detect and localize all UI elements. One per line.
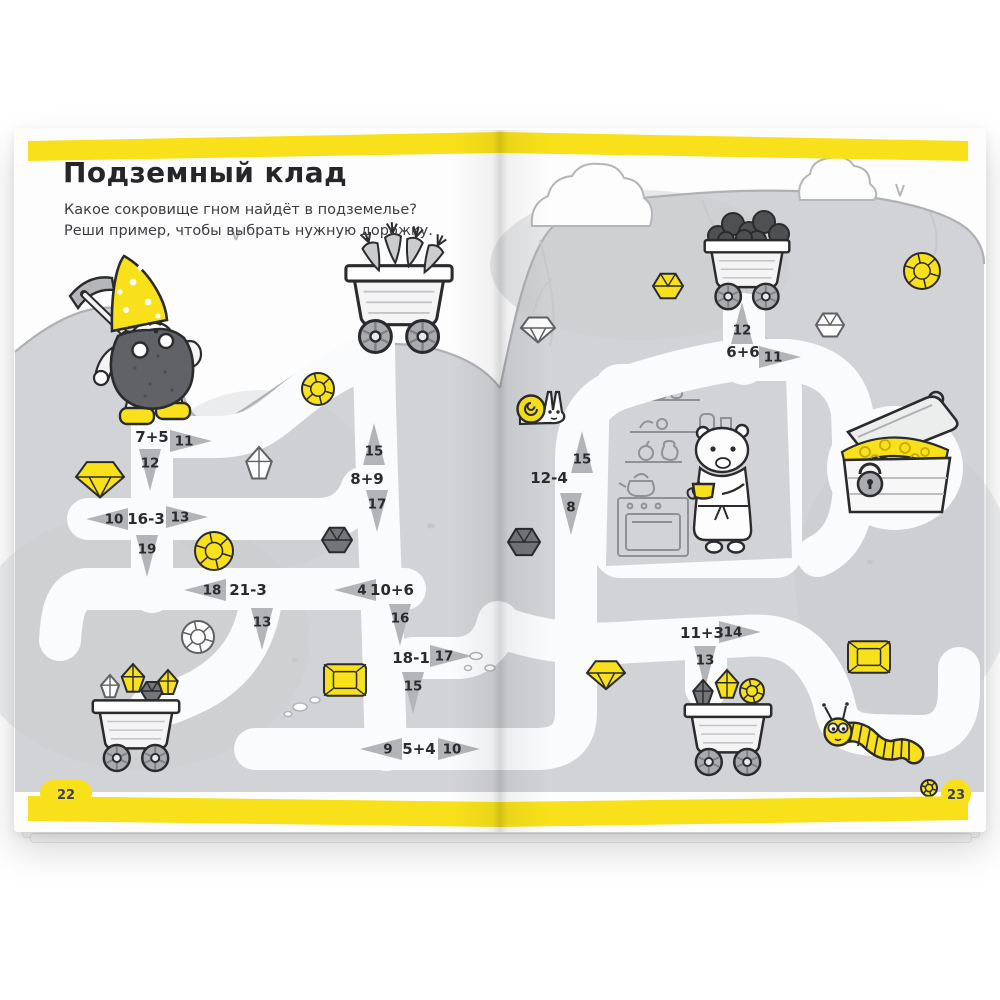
arrow-answer-label: 17 [368, 497, 387, 513]
arrow-answer-label: 12 [733, 323, 752, 339]
arrow-answer-label: 13 [253, 615, 272, 631]
math-expression: 5+4 [402, 740, 435, 758]
gem-white-round-icon [182, 621, 214, 653]
gem-yellow-round-icon [195, 532, 233, 570]
boot-icon [120, 408, 154, 424]
arrow-answer-label: 9 [383, 742, 392, 758]
page-title: Подземный клад [63, 156, 347, 189]
arrow-answer-label: 11 [175, 434, 194, 450]
arrow-answer-label: 8 [566, 500, 575, 516]
arrow-answer-label: 10 [105, 512, 124, 528]
beard [111, 329, 193, 409]
gem-yellow-emerald-icon [848, 641, 890, 673]
arrow-answer-label: 13 [171, 510, 190, 526]
gem-yellow-hex-icon [653, 274, 683, 299]
arrow-answer-label: 11 [764, 350, 783, 366]
math-expression: 18-1 [392, 649, 430, 667]
maze-artwork: 11127+510131916-3181321-315178+941610+61… [0, 0, 1000, 1000]
page-subtitle: Какое сокровище гном найдёт в подземелье… [64, 200, 433, 242]
math-expression: 11+3 [680, 624, 724, 642]
math-expression: 7+5 [135, 428, 168, 446]
gem-white-hex-icon [816, 314, 844, 337]
arrow-answer-label: 17 [435, 649, 454, 665]
math-expression: 10+6 [370, 581, 414, 599]
math-expression: 6+6 [726, 343, 759, 361]
gem-yellow-round-icon [740, 679, 764, 703]
tea-cup-icon [693, 484, 714, 499]
book-spread: 11127+510131916-3181321-315178+941610+61… [0, 0, 1000, 1000]
arrow-answer-label: 4 [357, 583, 366, 599]
subtitle-line-1: Какое сокровище гном найдёт в подземелье… [64, 200, 433, 221]
math-expression: 16-3 [127, 510, 165, 528]
arrow-answer-label: 12 [141, 456, 160, 472]
page-number-left: 22 [57, 788, 75, 803]
math-expression: 21-3 [229, 581, 267, 599]
hamster [688, 425, 752, 553]
arrow-answer-label: 19 [138, 542, 157, 558]
arrow-answer-label: 14 [724, 625, 743, 641]
arrow-answer-label: 15 [404, 679, 423, 695]
page-number-right: 23 [947, 788, 965, 803]
arrow-answer-label: 18 [203, 583, 222, 599]
spine-shadow [452, 130, 548, 832]
arrow-answer-label: 16 [391, 611, 410, 627]
bush-icon [799, 157, 876, 200]
gem-dark-hex-icon [322, 528, 352, 553]
gem-yellow-round-icon [904, 253, 940, 289]
arrow-answer-label: 13 [696, 653, 715, 669]
gem-yellow-emerald-icon [324, 664, 366, 696]
gem-yellow-round-icon [302, 373, 334, 405]
bush-icon [532, 164, 652, 226]
arrow-answer-label: 15 [573, 452, 592, 468]
math-expression: 8+9 [350, 470, 383, 488]
gem-yellow-round-icon [921, 780, 937, 796]
arrow-answer-label: 15 [365, 444, 384, 460]
subtitle-line-2: Реши пример, чтобы выбрать нужную дорожк… [64, 221, 433, 242]
